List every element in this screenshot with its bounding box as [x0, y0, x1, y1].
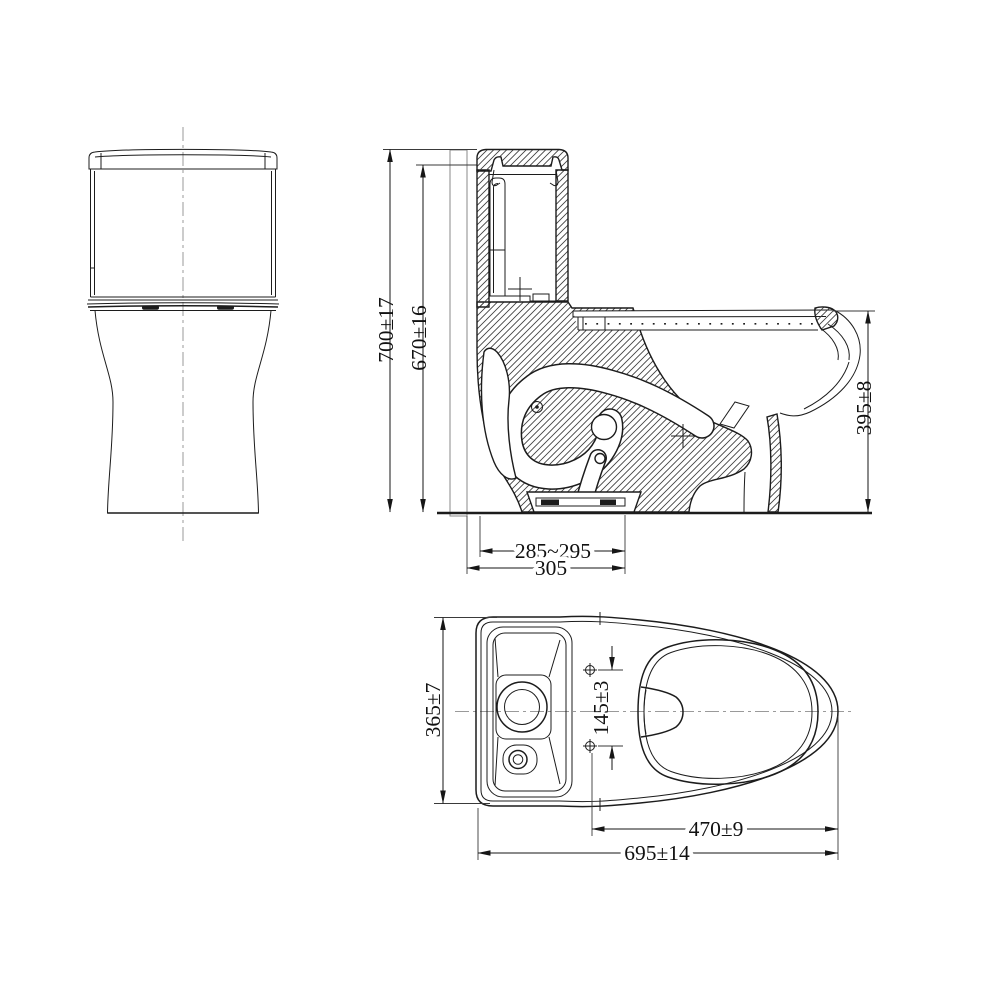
top-small-hole-inner	[513, 755, 523, 765]
dim-bolt-hole-spacing: 145±3	[589, 646, 623, 770]
side-section-view: 700±17 670±16 395±8 285~295 305	[374, 150, 876, 581]
side-outlet-flange	[527, 492, 641, 512]
side-pedestal-front-wall	[767, 414, 781, 512]
top-small-hole-outer	[509, 751, 527, 769]
side-tank-interior	[489, 175, 556, 302]
dim-bowl-rim-height-label: 395±8	[852, 381, 876, 436]
dim-bolt-hole-spacing-label: 145±3	[589, 681, 613, 736]
side-pivot-dot	[535, 405, 539, 409]
side-seat	[573, 310, 833, 330]
side-trap-circle-small	[595, 454, 605, 464]
side-tank-front-wall	[556, 170, 568, 301]
top-flush-button-inner	[505, 690, 540, 725]
side-tank-lid-section	[477, 150, 568, 172]
dim-tank-top-height: 670±16	[407, 165, 431, 512]
toilet-dimension-drawing: 700±17 670±16 395±8 285~295 305	[0, 0, 1000, 1000]
side-tank-back-wall	[477, 170, 489, 307]
side-trap-circle-large	[592, 415, 617, 440]
front-hinge-cap-left	[142, 306, 159, 310]
dim-overall-length-label: 695±14	[624, 841, 690, 865]
technical-drawing-page: 700±17 670±16 395±8 285~295 305	[0, 0, 1000, 1000]
top-view: 145±3 365±7 470±9 695±14	[421, 612, 852, 865]
dim-rough-in: 285~295 305	[467, 515, 625, 580]
front-hinge-cap-right	[217, 306, 234, 310]
dim-overall-length: 695±14	[478, 808, 838, 865]
dim-overall-height: 700±17	[374, 150, 398, 513]
dim-overall-width-label: 365±7	[421, 682, 445, 737]
dim-overall-height-label: 700±17	[374, 297, 398, 363]
side-lid-clips	[492, 170, 558, 186]
dim-bowl-length-label: 470±9	[689, 817, 744, 841]
dim-bowl-rim-height: 395±8	[833, 311, 876, 512]
dim-bowl-length: 470±9	[592, 716, 838, 860]
dim-tank-top-height-label: 670±16	[407, 305, 431, 371]
front-view	[87, 127, 279, 543]
dim-rough-in-max-label: 305	[535, 556, 567, 580]
wall-section	[450, 150, 467, 516]
dim-overall-width: 365±7	[421, 618, 497, 804]
